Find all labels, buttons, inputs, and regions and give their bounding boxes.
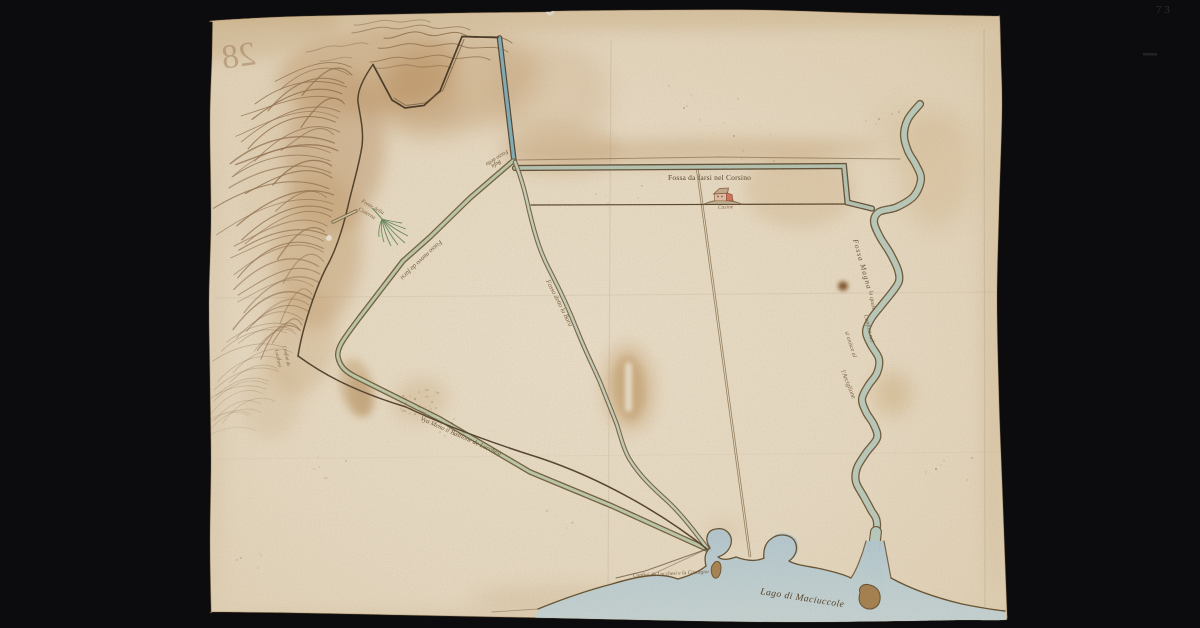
svg-text:7 3: 7 3	[1156, 4, 1170, 16]
